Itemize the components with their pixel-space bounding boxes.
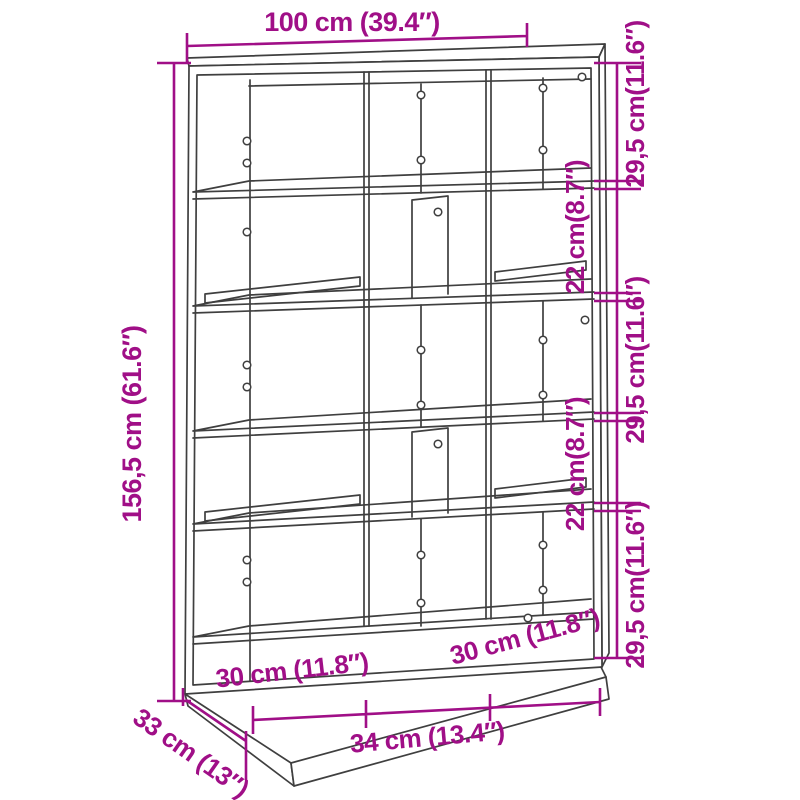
- dim-depth-label: 33 cm (13″): [128, 702, 255, 800]
- dim-top-width-label: 100 cm (39.4″): [264, 7, 440, 37]
- dim-bottom-middle-label: 34 cm (13.4″): [349, 715, 506, 758]
- dim-right-segment-2-label: 22 cm(8.7″): [560, 160, 590, 294]
- dim-left-height-label: 156,5 cm (61.6″): [117, 325, 147, 522]
- dim-right-segment-5-label: 29,5 cm(11.6″): [620, 501, 650, 668]
- furniture-dimension-diagram: 100 cm (39.4″) 156,5 cm (61.6″) 29,5 cm(…: [0, 0, 800, 800]
- dimension-depth: 33 cm (13″): [128, 688, 255, 800]
- dim-right-segment-3-label: 29,5 cm(11.6″): [620, 276, 650, 443]
- dim-right-segment-4-label: 22 cm(8.7″): [560, 397, 590, 531]
- dim-right-segment-1-label: 29,5 cm(11.6″): [620, 20, 650, 187]
- dimension-left-height: 156,5 cm (61.6″): [117, 63, 191, 701]
